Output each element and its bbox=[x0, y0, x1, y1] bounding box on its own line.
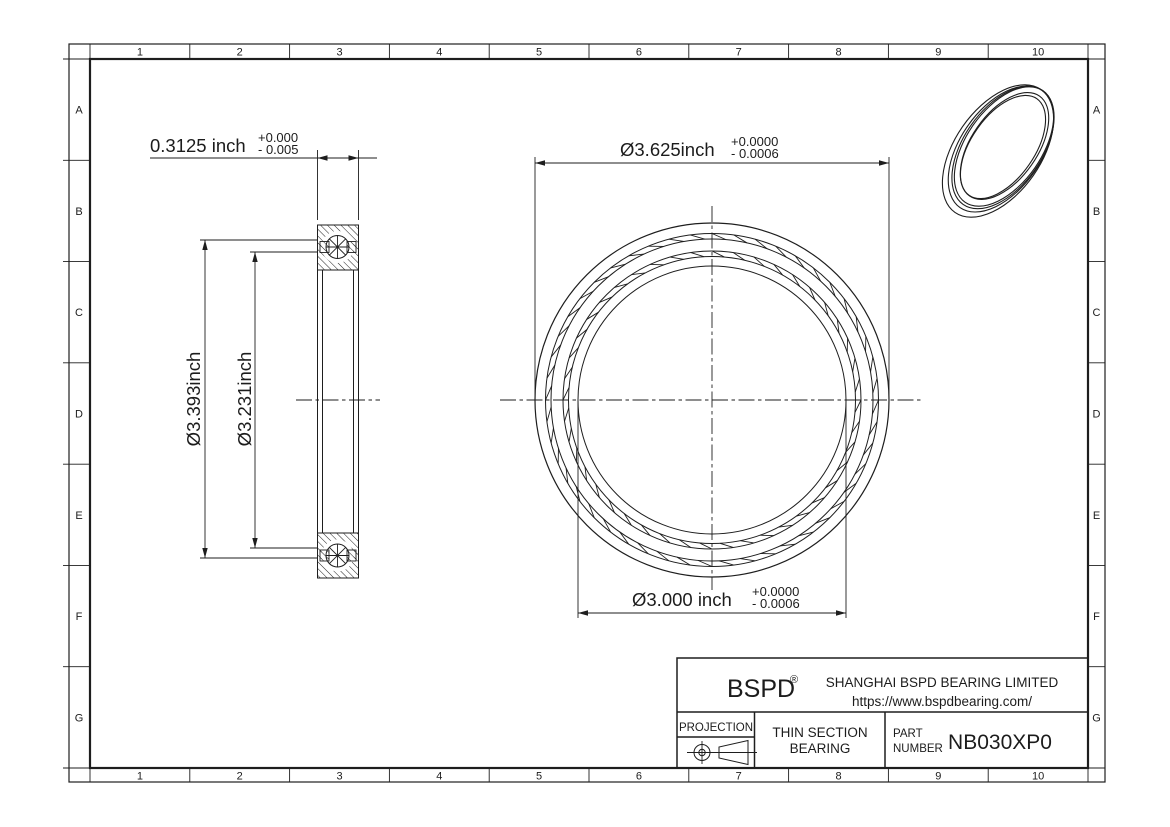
cage-tick bbox=[547, 407, 551, 422]
zone-row-label-right: D bbox=[1093, 409, 1101, 421]
title-block: BSPD ® SHANGHAI BSPD BEARING LIMITED htt… bbox=[677, 658, 1088, 768]
zone-column-label-top: 4 bbox=[436, 47, 442, 59]
zone-column-label-bottom: 10 bbox=[1032, 771, 1044, 783]
zone-column-label-bottom: 4 bbox=[436, 771, 442, 783]
cage-tick bbox=[719, 561, 734, 565]
zone-column-label-bottom: 3 bbox=[336, 771, 342, 783]
zone-row-label-left: F bbox=[76, 611, 83, 623]
cage-tick bbox=[740, 559, 755, 561]
cage-tick bbox=[793, 275, 800, 287]
cage-tick bbox=[569, 428, 571, 442]
cage-tick bbox=[795, 256, 804, 268]
cage-tick bbox=[580, 291, 593, 298]
arrowhead bbox=[836, 610, 846, 615]
zone-column-label-top: 9 bbox=[935, 47, 941, 59]
cage-tick bbox=[670, 257, 684, 259]
brand-logo-text: BSPD bbox=[727, 675, 795, 703]
dimension-lines bbox=[200, 240, 318, 558]
zone-row-label-left: G bbox=[75, 712, 84, 724]
arrowhead bbox=[252, 538, 257, 548]
side-section-view: 0.3125 inch +0.000 - 0.005 Ø3.393inch bbox=[150, 130, 380, 578]
cage-tick bbox=[776, 246, 787, 257]
company-website: https://www.bspdbearing.com/ bbox=[852, 694, 1032, 709]
zone-column-label-bottom: 8 bbox=[835, 771, 841, 783]
dimension-side-width: 0.3125 inch +0.000 - 0.005 bbox=[150, 130, 377, 220]
cage-tick bbox=[589, 503, 595, 517]
cage-tick bbox=[871, 357, 873, 372]
arrowhead bbox=[578, 610, 588, 615]
part-label-line2: NUMBER bbox=[893, 743, 943, 755]
arrowhead bbox=[252, 252, 257, 262]
cage-tick bbox=[587, 312, 599, 319]
cage-tick bbox=[638, 543, 649, 554]
cage-tick bbox=[594, 277, 608, 283]
registered-mark: ® bbox=[790, 674, 798, 686]
zone-row-label-right: A bbox=[1093, 105, 1101, 117]
zone-row-label-left: A bbox=[75, 105, 83, 117]
cage-tick bbox=[565, 408, 569, 421]
zone-column-label-bottom: 5 bbox=[536, 771, 542, 783]
iso-outer-edge bbox=[920, 65, 1076, 237]
arrowhead bbox=[349, 155, 359, 160]
tolerance-minus: - 0.0006 bbox=[752, 596, 800, 611]
cage-tick bbox=[831, 501, 844, 508]
engineering-drawing: 1122334455667788991010AABBCCDDEEFFGG bbox=[0, 0, 1170, 827]
projection-label: PROJECTION bbox=[679, 722, 753, 734]
tolerance-minus: - 0.0006 bbox=[731, 146, 779, 161]
zone-row-label-right: G bbox=[1092, 712, 1101, 724]
part-label-line1: PART bbox=[893, 728, 923, 740]
zone-column-label-bottom: 9 bbox=[935, 771, 941, 783]
zone-row-label-left: D bbox=[75, 409, 83, 421]
dimension-text: Ø3.000 inch bbox=[632, 589, 732, 610]
drawing-canvas: 1122334455667788991010AABBCCDDEEFFGG bbox=[0, 0, 1170, 827]
cage-tick bbox=[551, 428, 553, 443]
zone-column-label-bottom: 7 bbox=[736, 771, 742, 783]
dimension-lines bbox=[150, 150, 377, 220]
zone-column-label-top: 1 bbox=[137, 47, 143, 59]
zone-row-label-right: B bbox=[1093, 206, 1100, 218]
zone-column-label-bottom: 1 bbox=[137, 771, 143, 783]
zone-column-label-top: 8 bbox=[835, 47, 841, 59]
cage-tick bbox=[740, 541, 754, 543]
ball-top-spokes bbox=[326, 236, 349, 259]
zone-row-label-left: B bbox=[75, 206, 82, 218]
cage-tick bbox=[830, 282, 836, 296]
zone-column-label-top: 5 bbox=[536, 47, 542, 59]
arrowhead bbox=[879, 160, 889, 165]
zone-row-label-right: E bbox=[1093, 510, 1100, 522]
front-view: Ø3.625inch +0.0000 - 0.0006 Ø3.000 inch … bbox=[500, 134, 924, 618]
company-name: SHANGHAI BSPD BEARING LIMITED bbox=[826, 675, 1059, 690]
dimension-text: Ø3.625inch bbox=[620, 139, 715, 160]
cage-tick bbox=[853, 358, 855, 372]
zone-column-label-bottom: 6 bbox=[636, 771, 642, 783]
dimension-text: Ø3.231inch bbox=[234, 352, 255, 447]
cage-tick bbox=[624, 514, 631, 526]
tolerance-minus: - 0.005 bbox=[258, 142, 298, 157]
cage-tick bbox=[568, 308, 580, 317]
zone-column-label-top: 6 bbox=[636, 47, 642, 59]
cage-tick bbox=[855, 464, 866, 475]
isometric-ring-view bbox=[920, 65, 1076, 237]
zone-column-label-top: 3 bbox=[336, 47, 342, 59]
product-title-line1: THIN SECTION bbox=[772, 725, 867, 740]
zone-row-label-left: E bbox=[75, 510, 82, 522]
zone-row-label-right: C bbox=[1093, 307, 1101, 319]
product-title-line2: BEARING bbox=[790, 741, 851, 756]
arrowhead bbox=[202, 548, 207, 558]
cage-tick bbox=[691, 253, 704, 257]
ball-bottom-spokes bbox=[326, 544, 349, 567]
ring-silhouette bbox=[318, 225, 359, 578]
arrowhead bbox=[318, 155, 328, 160]
arrowhead bbox=[535, 160, 545, 165]
cage-tick bbox=[558, 326, 569, 337]
dimension-text: Ø3.393inch bbox=[183, 352, 204, 447]
cage-tick bbox=[815, 518, 829, 524]
part-number-value: NB030XP0 bbox=[948, 731, 1052, 754]
projection-symbol-icon bbox=[687, 741, 757, 765]
zone-column-label-bottom: 2 bbox=[237, 771, 243, 783]
cage-tick bbox=[720, 543, 733, 547]
cage-tick bbox=[669, 239, 684, 241]
zone-column-label-top: 2 bbox=[237, 47, 243, 59]
dimension-text: 0.3125 inch bbox=[150, 135, 246, 156]
arrowhead bbox=[202, 240, 207, 250]
zone-row-label-right: F bbox=[1093, 611, 1100, 623]
cage-tick bbox=[620, 532, 629, 544]
cage-tick bbox=[855, 379, 859, 392]
zone-column-label-top: 7 bbox=[736, 47, 742, 59]
cage-tick bbox=[873, 378, 877, 393]
cage-tick bbox=[826, 481, 838, 488]
zone-column-label-top: 10 bbox=[1032, 47, 1044, 59]
cage-tick bbox=[813, 268, 820, 281]
cage-tick bbox=[603, 519, 610, 532]
zone-row-label-left: C bbox=[75, 307, 83, 319]
cage-tick bbox=[690, 235, 705, 239]
